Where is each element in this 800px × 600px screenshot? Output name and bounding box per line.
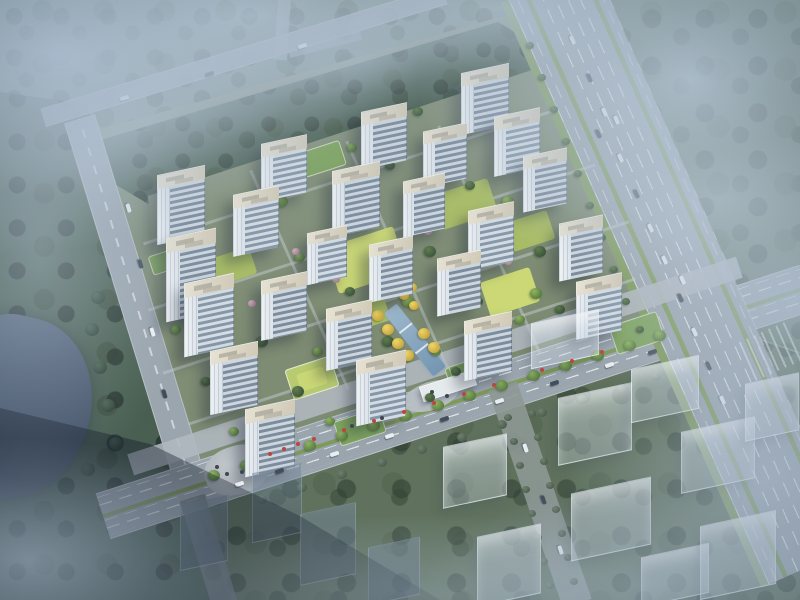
aerial-rendering-scene xyxy=(0,0,800,600)
vignette xyxy=(0,0,800,600)
